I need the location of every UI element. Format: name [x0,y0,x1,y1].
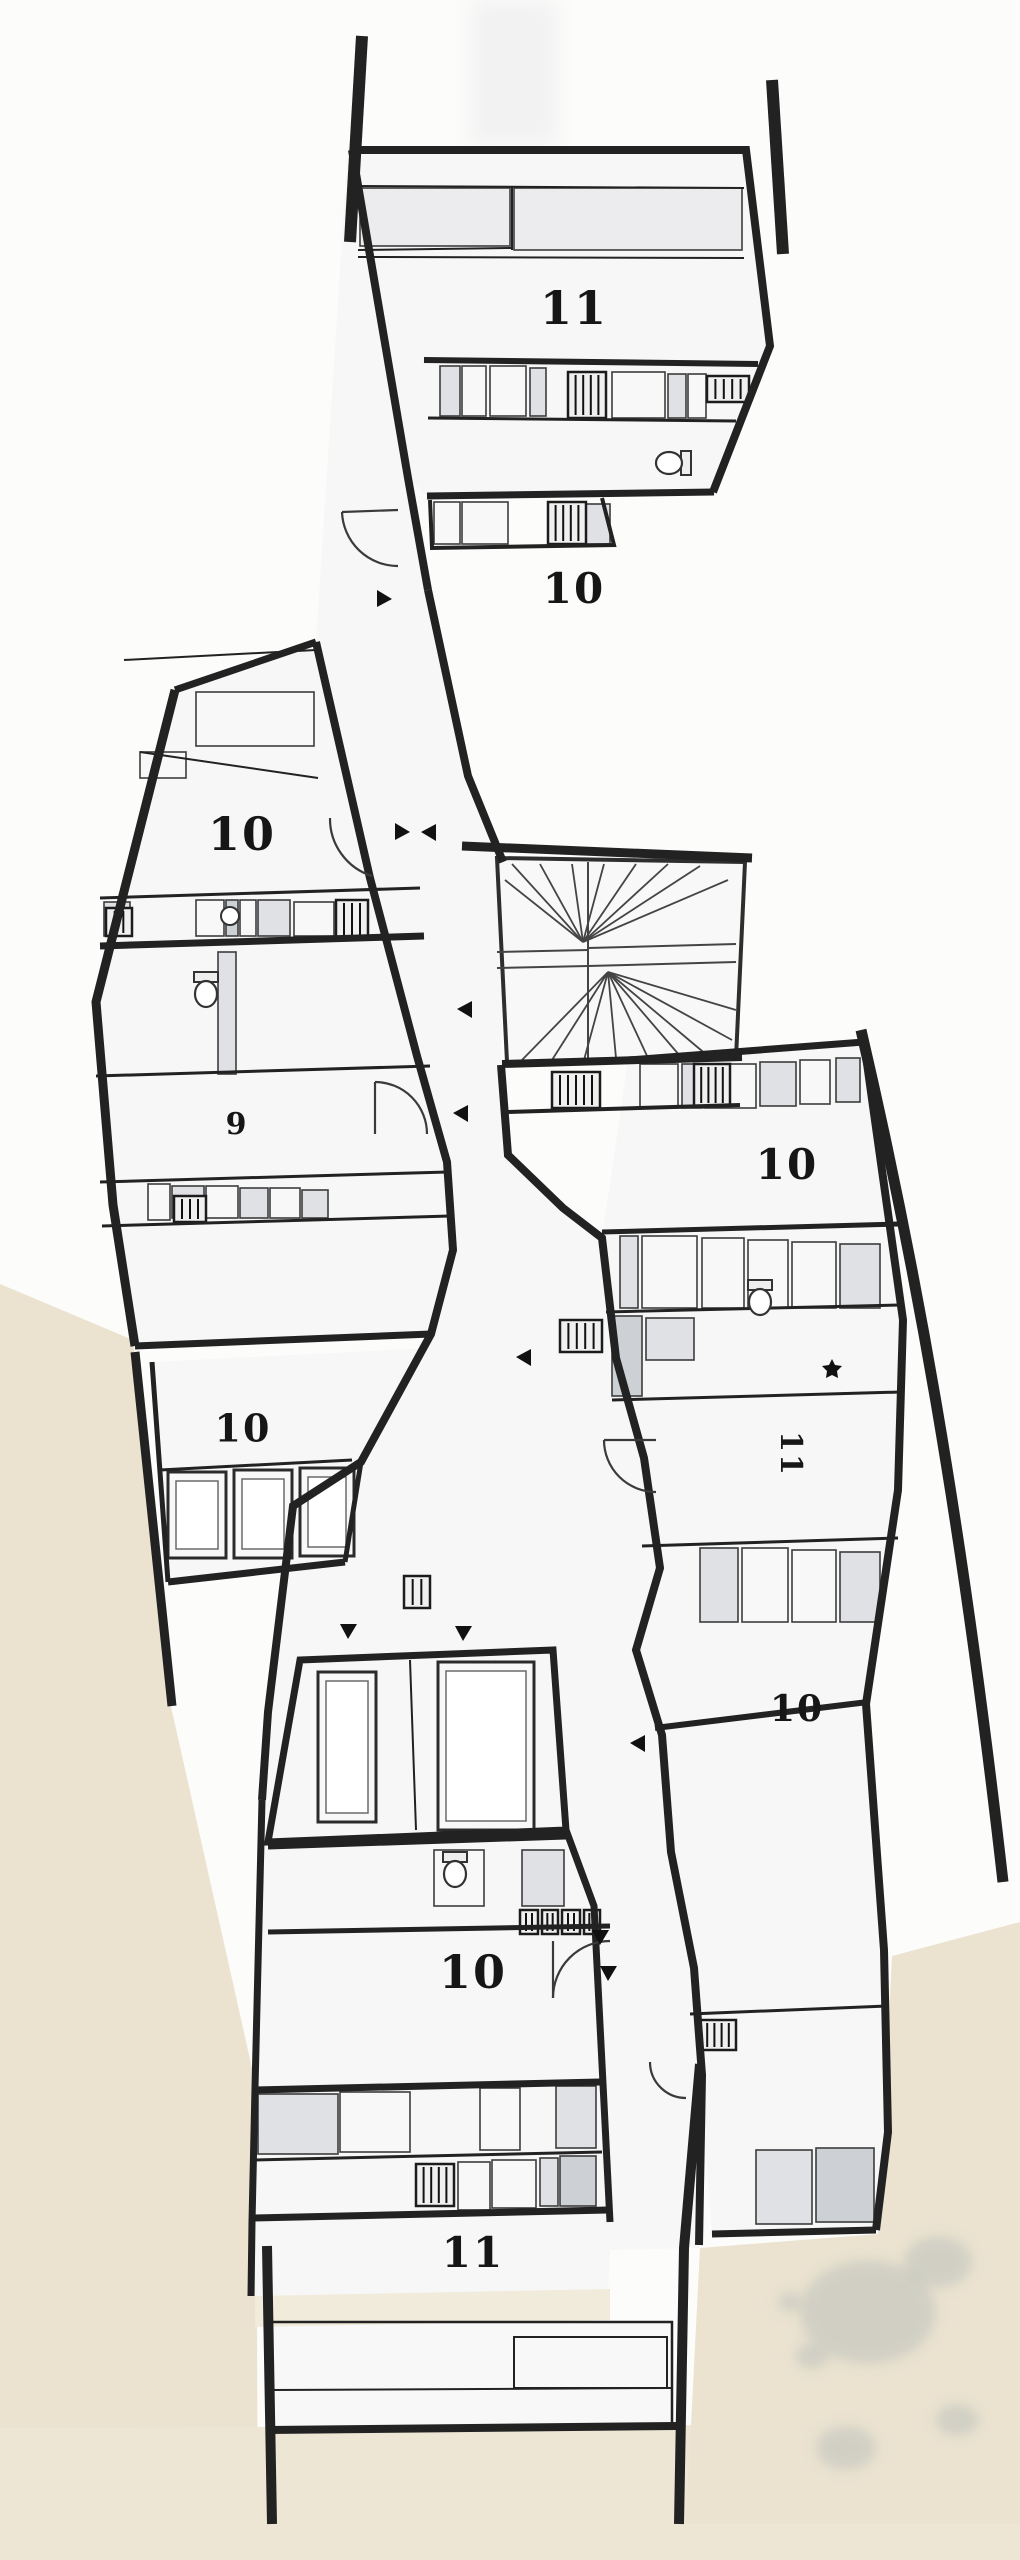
room-cell [792,1550,836,1622]
room-cell [530,368,546,416]
toilet-bowl [656,452,682,474]
ground-blotch [795,2343,829,2369]
sink-icon [221,907,239,925]
ground-blotch [935,2404,979,2436]
room-cell [340,2092,410,2152]
room-cell [196,692,314,746]
unit-number-label: 11 [442,2228,504,2277]
floor-plan-canvas: 1110109101011101011 [0,0,1020,2560]
room-cell [270,1188,300,1218]
room-cell [688,374,706,418]
unit-number-label: 10 [756,1140,818,1189]
unit-number-label: 10 [215,1406,272,1451]
room-cell [196,900,224,936]
unit-number-label: 11 [773,1431,808,1477]
fixture-hatch [404,1576,430,1608]
ground-blotch [904,2236,972,2288]
toilet-icon [194,972,218,1007]
room-cell [302,1190,328,1218]
fixture-hatch [542,1910,558,1934]
room-cell [490,366,526,416]
room-cell [258,900,290,936]
room-cell [458,2162,490,2210]
window-box-inner [242,1479,284,1549]
room-cell [462,366,486,416]
unit-number-label: 10 [543,564,605,613]
room-cell [240,900,256,936]
room-cell [840,1244,880,1308]
fixture-hatch [560,1320,602,1352]
room-cell [646,1318,694,1360]
unit-number-label: 11 [540,281,608,335]
room-cell [462,502,508,544]
room-cell [560,2156,596,2206]
room-cell [700,1548,738,1622]
wall [424,360,758,364]
room-cell [540,2158,558,2206]
wall [427,492,714,496]
room-cell [206,1186,238,1218]
room-cell [792,1242,836,1308]
unit-number-label: 10 [439,1945,507,1999]
room-cell [360,188,510,246]
fixture-hatch [700,2020,736,2050]
room-cell [756,2150,812,2224]
room-cell [258,2094,338,2154]
room-cell [642,1236,697,1308]
wall [358,257,744,258]
toilet-bowl [195,981,217,1007]
room-cell [294,902,334,936]
toilet-bowl [444,1861,466,1887]
unit-number-label: 10 [770,1688,824,1730]
room-cell [702,1238,744,1308]
room-cell [816,2148,874,2222]
window-box-inner [446,1671,526,1821]
fixture-hatch [562,1910,580,1934]
room-cell [836,1058,860,1102]
room-cell [742,1548,788,1622]
room-cell [514,188,742,250]
room-cell [760,1062,796,1106]
room-cell [800,1060,830,1104]
window-box-inner [176,1481,218,1549]
toilet-icon [656,451,691,475]
room-cell [522,1850,564,1906]
toilet-bowl [749,1289,771,1315]
fixture-hatch [416,2164,454,2206]
room-cell [240,1188,268,1218]
fixture-hatch [548,502,586,544]
ground-blotch [816,2426,876,2470]
room-cell [612,372,665,418]
window-box-inner [326,1681,368,1813]
ground-blotch [778,2292,802,2312]
unit-number-label: 9 [226,1107,249,1142]
fixture-hatch [568,372,606,418]
room-cell [440,366,460,416]
room-cell [218,952,236,1074]
toilet-icon [748,1280,772,1315]
floor-plan-drawing: 1110109101011101011 [0,0,1020,2560]
room-cell [148,1184,170,1220]
unit-number-label: 10 [208,807,276,861]
fixture-hatch [707,376,749,402]
room-cell [480,2088,520,2150]
room-cell [492,2160,536,2208]
room-cell [840,1552,880,1622]
room-cell [620,1236,638,1308]
room-cell [640,1064,678,1108]
room-cell [434,502,460,544]
fixture-hatch [694,1064,730,1106]
top-shade [470,0,558,146]
fixture-hatch [520,1910,538,1934]
room-cell [556,2086,596,2148]
room-cell [668,374,686,418]
toilet-icon [443,1852,467,1887]
wall [712,2230,876,2234]
